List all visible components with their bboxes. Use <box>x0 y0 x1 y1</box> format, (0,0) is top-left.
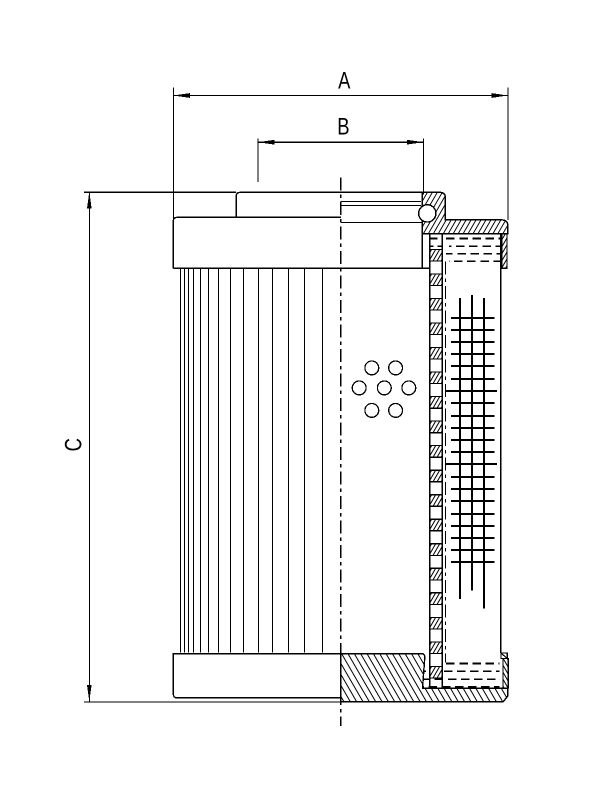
svg-text:B: B <box>337 112 349 140</box>
svg-text:A: A <box>338 66 351 94</box>
svg-text:C: C <box>59 438 87 451</box>
